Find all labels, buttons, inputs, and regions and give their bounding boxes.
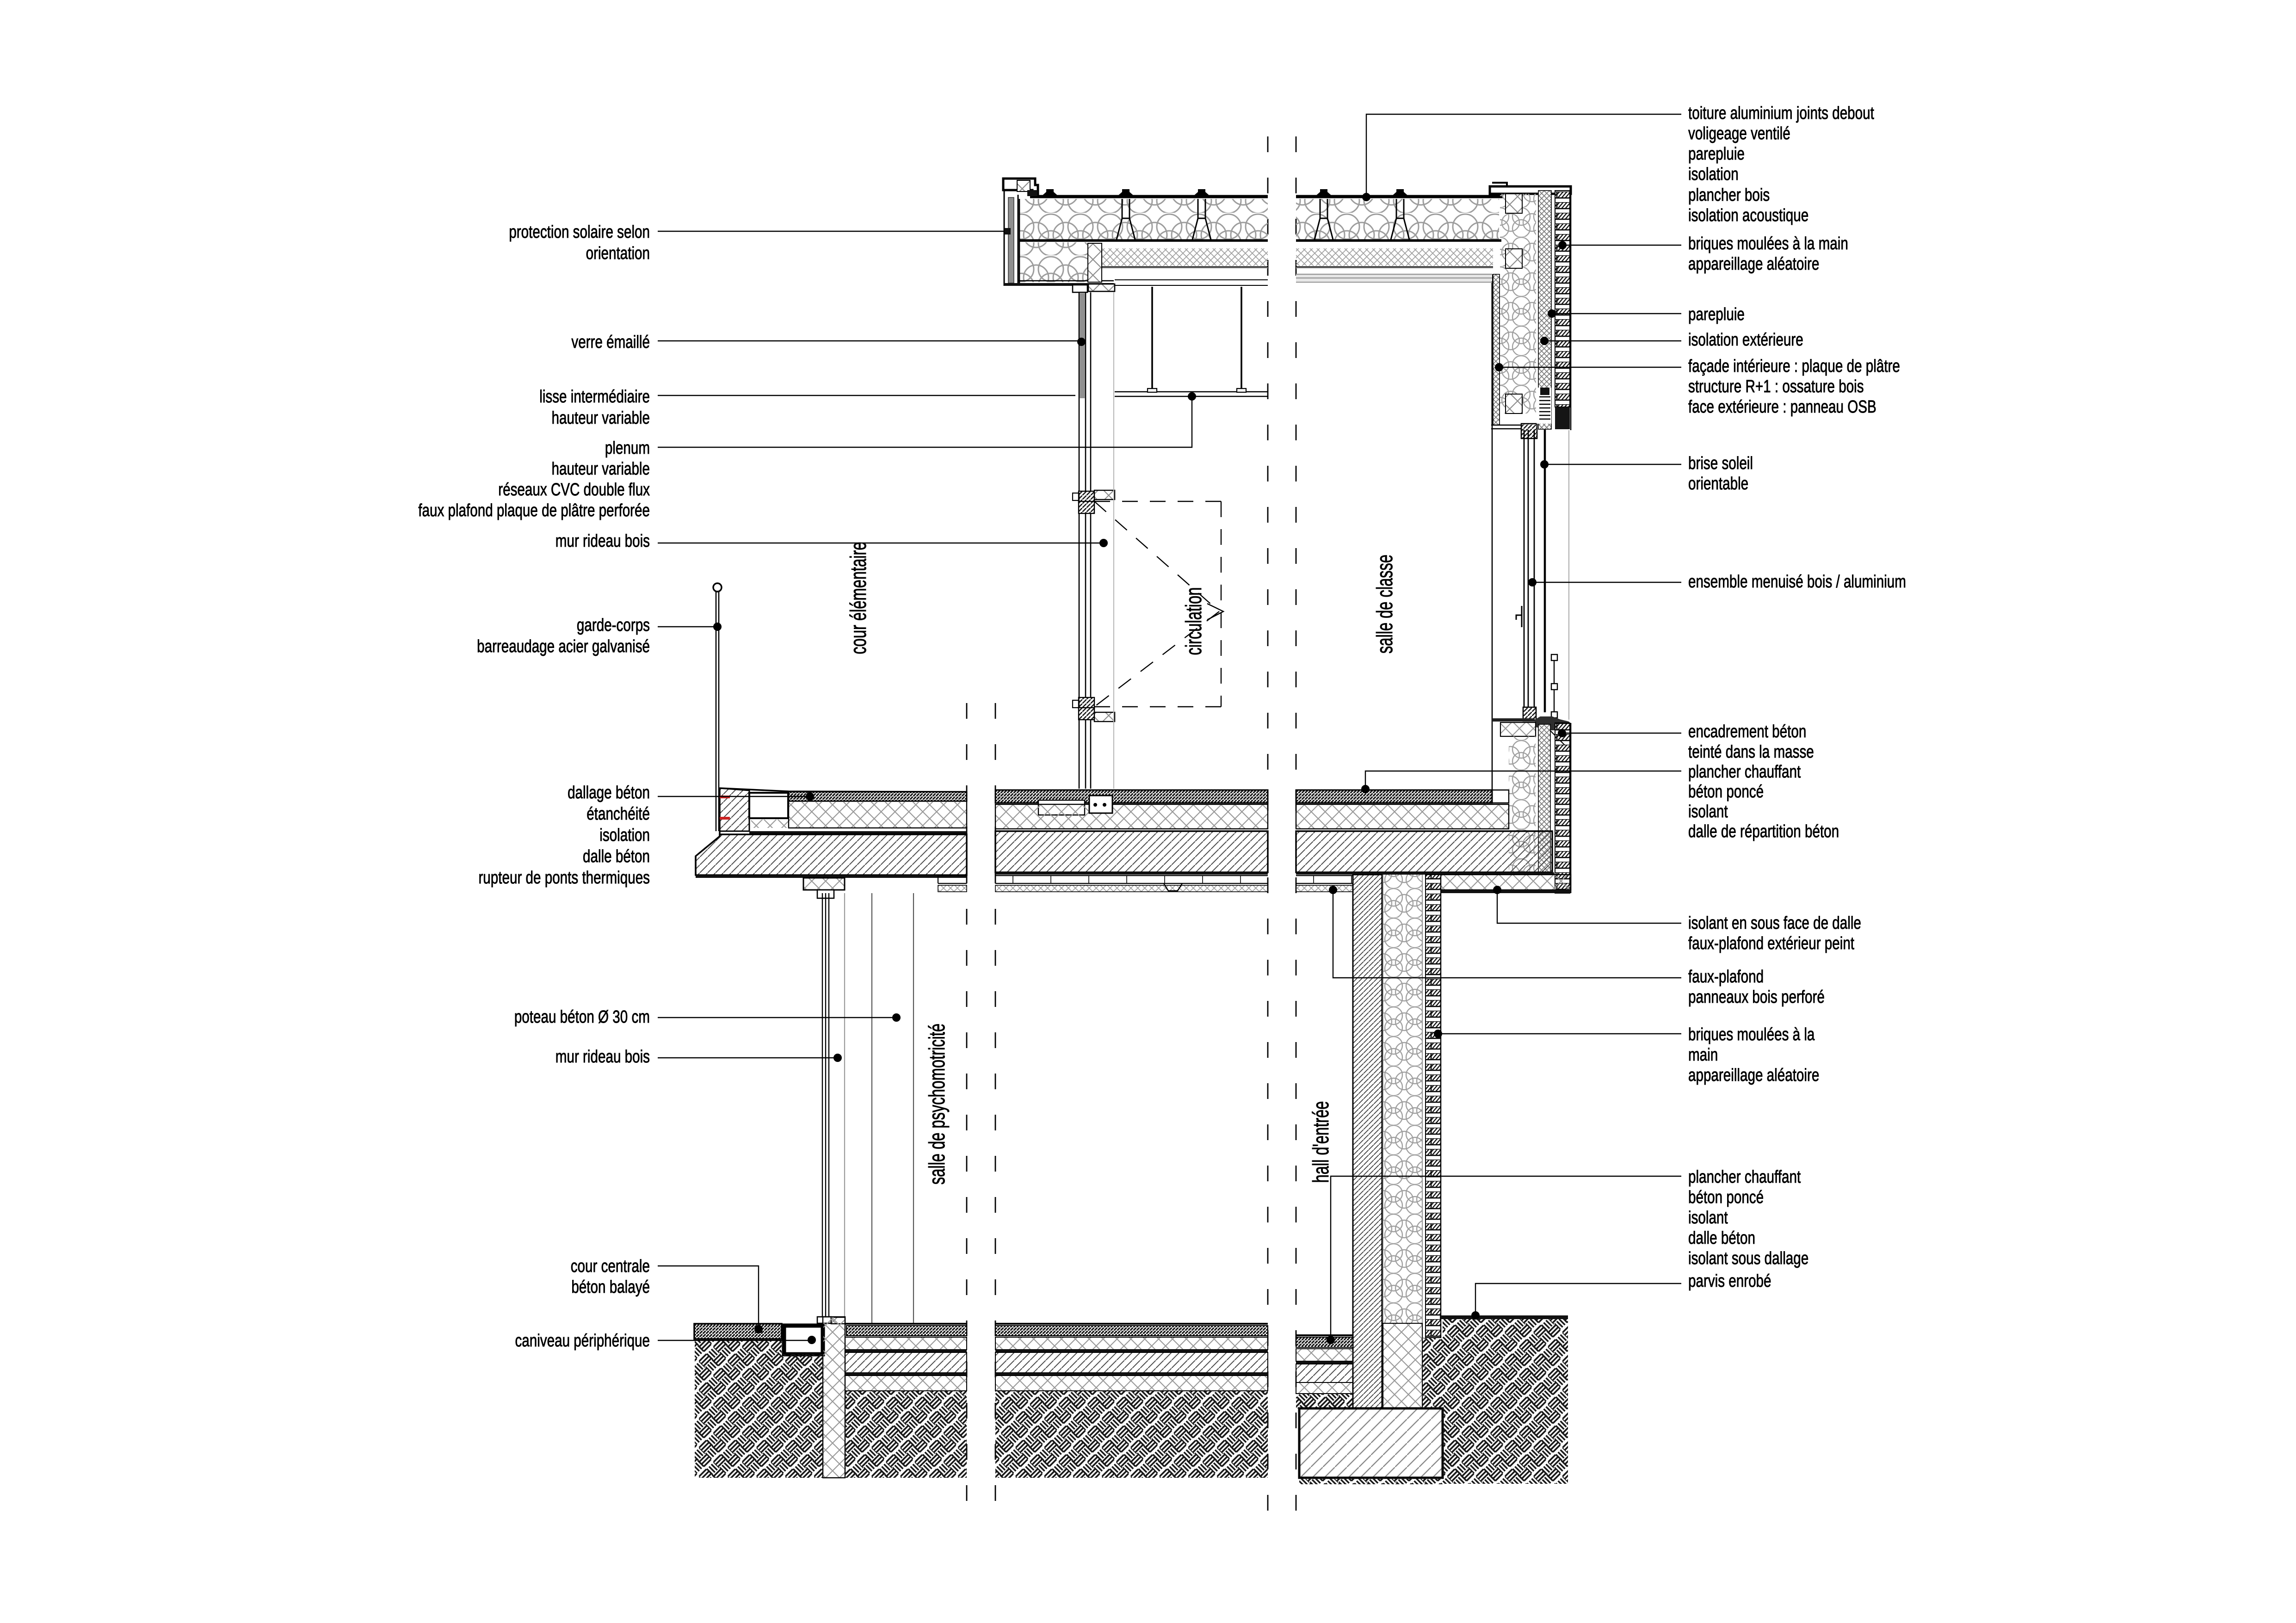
svg-text:lisse intermédiaire: lisse intermédiaire	[539, 387, 650, 407]
svg-text:orientation: orientation	[586, 244, 650, 263]
svg-text:appareillage aléatoire: appareillage aléatoire	[1688, 254, 1819, 274]
svg-text:ensemble menuisé bois / alumin: ensemble menuisé bois / aluminium	[1688, 572, 1906, 592]
svg-text:hall d'entrée: hall d'entrée	[1308, 1101, 1333, 1183]
svg-text:cour centrale: cour centrale	[571, 1257, 650, 1276]
svg-text:plenum: plenum	[605, 438, 650, 458]
svg-text:parepluie: parepluie	[1688, 144, 1745, 164]
svg-text:béton poncé: béton poncé	[1688, 782, 1764, 802]
svg-text:dallage béton: dallage béton	[568, 783, 650, 802]
svg-text:isolant en sous face de dalle: isolant en sous face de dalle	[1688, 913, 1861, 933]
svg-text:faux plafond plaque de plâtre: faux plafond plaque de plâtre perforée	[418, 501, 650, 520]
svg-text:teinté dans la masse: teinté dans la masse	[1688, 742, 1814, 762]
svg-text:protection solaire selon: protection solaire selon	[509, 222, 650, 242]
svg-text:poteau béton Ø 30 cm: poteau béton Ø 30 cm	[514, 1007, 650, 1027]
svg-text:caniveau périphérique: caniveau périphérique	[515, 1331, 650, 1351]
svg-text:encadrement béton: encadrement béton	[1688, 722, 1806, 741]
svg-text:circulation: circulation	[1181, 587, 1206, 655]
svg-text:étanchéité: étanchéité	[586, 804, 650, 824]
svg-text:réseaux CVC double flux: réseaux CVC double flux	[498, 480, 650, 500]
svg-text:béton poncé: béton poncé	[1688, 1188, 1764, 1207]
svg-text:parepluie: parepluie	[1688, 305, 1745, 324]
svg-text:salle de classe: salle de classe	[1372, 555, 1397, 654]
svg-text:dalle béton: dalle béton	[1688, 1228, 1755, 1248]
svg-text:cour élémentaire: cour élémentaire	[846, 542, 871, 654]
svg-text:garde-corps: garde-corps	[577, 616, 650, 635]
svg-text:isolant: isolant	[1688, 1208, 1728, 1228]
svg-text:faux-plafond extérieur peint: faux-plafond extérieur peint	[1688, 934, 1855, 953]
svg-text:brise soleil: brise soleil	[1688, 454, 1753, 473]
svg-text:structure R+1 : ossature bois: structure R+1 : ossature bois	[1688, 377, 1864, 396]
svg-text:barreaudage acier galvanisé: barreaudage acier galvanisé	[477, 637, 650, 656]
svg-text:isolant sous dallage: isolant sous dallage	[1688, 1249, 1808, 1268]
svg-text:plancher chauffant: plancher chauffant	[1688, 1167, 1801, 1187]
svg-text:plancher chauffant: plancher chauffant	[1688, 762, 1801, 782]
svg-text:dalle béton: dalle béton	[583, 847, 650, 866]
svg-text:mur rideau bois: mur rideau bois	[555, 1047, 650, 1067]
svg-text:orientable: orientable	[1688, 474, 1748, 494]
svg-text:briques moulées à la: briques moulées à la	[1688, 1025, 1815, 1044]
svg-text:isolation extérieure: isolation extérieure	[1688, 330, 1803, 350]
svg-text:façade intérieure : plaque de: façade intérieure : plaque de plâtre	[1688, 357, 1900, 376]
svg-text:rupteur de ponts thermiques: rupteur de ponts thermiques	[478, 868, 650, 888]
svg-text:face extérieure : panneau OSB: face extérieure : panneau OSB	[1688, 397, 1876, 417]
svg-text:béton balayé: béton balayé	[571, 1277, 650, 1297]
svg-text:dalle de répartition béton: dalle de répartition béton	[1688, 822, 1839, 841]
svg-text:panneaux bois perforé: panneaux bois perforé	[1688, 987, 1825, 1007]
svg-text:isolation: isolation	[1688, 165, 1739, 184]
svg-text:mur rideau bois: mur rideau bois	[555, 531, 650, 551]
svg-text:briques moulées à la main: briques moulées à la main	[1688, 234, 1848, 253]
svg-text:verre émaillé: verre émaillé	[571, 333, 650, 352]
svg-text:plancher bois: plancher bois	[1688, 185, 1770, 205]
svg-text:faux-plafond: faux-plafond	[1688, 967, 1764, 987]
svg-text:parvis enrobé: parvis enrobé	[1688, 1271, 1771, 1291]
svg-text:toiture aluminium joints debou: toiture aluminium joints debout	[1688, 104, 1874, 123]
svg-text:hauteur variable: hauteur variable	[552, 459, 650, 479]
svg-text:main: main	[1688, 1045, 1718, 1065]
svg-text:salle de psychomotricité: salle de psychomotricité	[925, 1024, 950, 1185]
svg-text:hauteur variable: hauteur variable	[552, 408, 650, 428]
svg-text:appareillage aléatoire: appareillage aléatoire	[1688, 1066, 1819, 1085]
svg-text:voligeage ventilé: voligeage ventilé	[1688, 124, 1790, 143]
svg-text:isolation acoustique: isolation acoustique	[1688, 206, 1808, 225]
svg-text:isolation: isolation	[599, 826, 650, 845]
svg-text:isolant: isolant	[1688, 802, 1728, 821]
